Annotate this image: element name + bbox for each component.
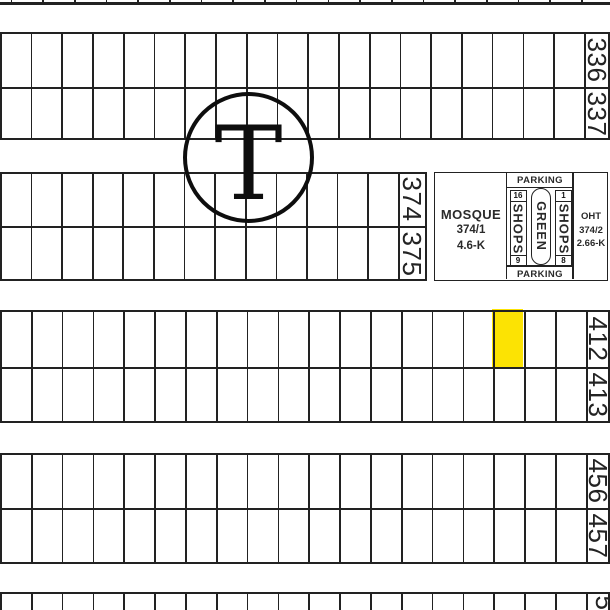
highlighted-plot[interactable] <box>492 309 523 367</box>
plot-boundary <box>123 32 125 140</box>
plot-boundary <box>201 0 203 3</box>
band-top-edge <box>0 453 610 455</box>
plot-boundary <box>555 453 557 564</box>
plot-boundary <box>339 592 341 610</box>
plot-boundary <box>586 592 588 610</box>
plot-boundary <box>307 32 309 140</box>
plot-boundary <box>370 453 372 564</box>
plot-boundary <box>432 453 434 564</box>
plot-row-divider <box>0 508 610 510</box>
oht-label: OHT 374/2 2.66-K <box>572 210 610 251</box>
plot-boundary <box>185 453 187 564</box>
plot-boundary <box>153 172 155 281</box>
plot-boundary <box>154 32 156 140</box>
plot-boundary <box>278 592 280 610</box>
plot-boundary <box>555 592 557 610</box>
block-label-413: 413 <box>583 355 610 435</box>
plot-boundary <box>216 592 218 610</box>
shops-strip-right: 1 SHOPS 8 <box>555 190 572 267</box>
green-label: GREEN <box>534 202 548 251</box>
t-symbol-letter: T <box>214 101 282 215</box>
plot-row-divider <box>0 367 610 369</box>
plot-boundary <box>123 592 125 610</box>
plot-boundary <box>400 32 402 140</box>
plot-boundary <box>339 453 341 564</box>
plot-boundary <box>216 453 218 564</box>
plot-boundary <box>62 453 64 564</box>
plot-boundary <box>308 453 310 564</box>
plot-boundary <box>169 0 171 3</box>
plot-boundary <box>216 310 218 423</box>
plot-boundary <box>463 310 465 423</box>
plot-boundary <box>492 32 494 140</box>
plot-boundary <box>247 453 249 564</box>
plot-boundary <box>62 592 64 610</box>
plot-boundary <box>549 0 551 3</box>
plot-boundary <box>184 172 186 281</box>
plot-boundary <box>74 0 76 3</box>
plot-boundary <box>524 453 526 564</box>
plot-boundary <box>432 310 434 423</box>
plot-boundary <box>122 172 124 281</box>
mosque-label: MOSQUE 374/1 4.6-K <box>436 207 506 254</box>
plot-boundary <box>278 310 280 423</box>
plot-boundary <box>359 0 361 3</box>
band-top-edge <box>0 592 610 594</box>
mosque-area: 4.6-K <box>457 238 485 254</box>
plot-boundary <box>137 0 139 3</box>
mosque-name: MOSQUE <box>441 207 501 222</box>
plot-boundary <box>11 0 13 3</box>
plot-boundary <box>370 310 372 423</box>
plot-boundary <box>493 310 495 423</box>
plot-boundary <box>61 32 63 140</box>
plot-boundary <box>93 453 95 564</box>
plot-boundary <box>401 453 403 564</box>
plot-boundary <box>0 32 2 140</box>
plot-boundary <box>493 592 495 610</box>
plot-boundary <box>154 310 156 423</box>
plot-boundary <box>154 592 156 610</box>
oht-plot-no: 374/2 <box>579 224 603 238</box>
plot-boundary <box>185 592 187 610</box>
circle-t-symbol: T <box>183 92 314 223</box>
plot-boundary <box>247 310 249 423</box>
plot-boundary <box>493 453 495 564</box>
mosque-plot-no: 374/1 <box>457 222 486 238</box>
plot-boundary <box>524 592 526 610</box>
plot-boundary <box>31 453 33 564</box>
plot-boundary <box>31 310 33 423</box>
band-top-edge <box>0 310 610 312</box>
plot-boundary <box>461 32 463 140</box>
block-label-375: 375 <box>397 214 427 294</box>
plot-boundary <box>518 0 520 3</box>
plot-boundary <box>337 172 339 281</box>
shop-no-9: 9 <box>511 255 526 266</box>
plot-boundary <box>184 32 186 140</box>
block-label-337: 337 <box>582 74 610 154</box>
plot-boundary <box>308 592 310 610</box>
plot-boundary <box>296 0 298 3</box>
shop-no-1: 1 <box>556 191 571 202</box>
plot-boundary <box>106 0 108 3</box>
block-label-partial: 5 <box>590 563 610 610</box>
plot-boundary <box>185 310 187 423</box>
plot-boundary <box>92 32 94 140</box>
plot-boundary <box>123 310 125 423</box>
plot-boundary <box>328 0 330 3</box>
shop-no-8: 8 <box>556 255 571 266</box>
oht-area: 2.66-K <box>577 237 606 251</box>
plot-boundary <box>369 32 371 140</box>
plot-boundary <box>306 172 308 281</box>
plot-boundary <box>486 0 488 3</box>
plot-boundary <box>454 0 456 3</box>
plot-boundary <box>92 172 94 281</box>
plot-boundary <box>0 453 2 564</box>
plot-boundary <box>31 32 33 140</box>
plot-boundary <box>93 310 95 423</box>
plot-boundary <box>308 310 310 423</box>
plot-boundary <box>123 453 125 564</box>
plot-boundary <box>31 592 33 610</box>
plot-boundary <box>42 0 44 3</box>
plot-boundary <box>61 172 63 281</box>
plot-boundary <box>463 453 465 564</box>
parking-label-top: PARKING <box>506 175 574 186</box>
plot-boundary <box>370 592 372 610</box>
band-bottom-edge <box>0 562 610 564</box>
plot-boundary <box>0 592 2 610</box>
plot-boundary <box>247 592 249 610</box>
plot-boundary <box>62 310 64 423</box>
plot-boundary <box>93 592 95 610</box>
plot-boundary <box>0 310 2 423</box>
plot-boundary <box>338 32 340 140</box>
plot-boundary <box>401 592 403 610</box>
plot-boundary <box>339 310 341 423</box>
plot-boundary <box>463 592 465 610</box>
shops-left-label: SHOPS <box>511 203 526 254</box>
plot-boundary <box>278 453 280 564</box>
plot-boundary <box>232 0 234 3</box>
shops-strip-left: 16 SHOPS 9 <box>510 190 527 267</box>
plot-boundary <box>553 32 555 140</box>
plot-boundary <box>0 172 2 281</box>
plot-boundary <box>391 0 393 3</box>
plot-boundary <box>524 310 526 423</box>
parking-label-bottom: PARKING <box>506 269 574 280</box>
plot-boundary <box>555 310 557 423</box>
plot-boundary <box>264 0 266 3</box>
plot-boundary <box>430 32 432 140</box>
plot-boundary <box>31 172 33 281</box>
plot-boundary <box>401 310 403 423</box>
housing-scheme-plot-map: 336 337 374 375 412 413 456 457 5 MOSQUE… <box>0 0 610 610</box>
plot-boundary <box>523 32 525 140</box>
shops-right-label: SHOPS <box>556 203 571 254</box>
oht-name: OHT <box>581 210 601 224</box>
plot-boundary <box>423 0 425 3</box>
plot-boundary <box>581 0 583 3</box>
plot-boundary <box>432 592 434 610</box>
plot-boundary <box>367 172 369 281</box>
shop-no-16: 16 <box>511 191 526 202</box>
band-bottom-edge <box>0 421 610 423</box>
plot-boundary <box>154 453 156 564</box>
green-strip: GREEN <box>531 188 552 266</box>
